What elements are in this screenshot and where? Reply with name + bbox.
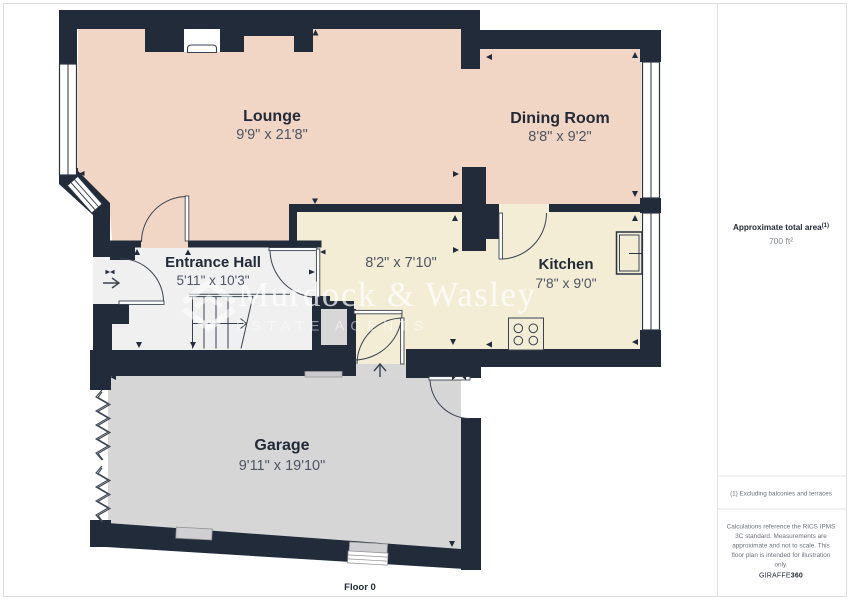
svg-text:floor plan is intended for ill: floor plan is intended for illustration bbox=[732, 552, 831, 559]
svg-text:Entrance Hall: Entrance Hall bbox=[165, 254, 261, 271]
svg-text:Approximate total area(1): Approximate total area(1) bbox=[733, 223, 829, 232]
svg-text:Calculations reference the RIC: Calculations reference the RICS IPMS bbox=[727, 524, 836, 531]
svg-text:GIRAFFE360: GIRAFFE360 bbox=[759, 573, 803, 580]
svg-text:Dining Room: Dining Room bbox=[510, 110, 610, 127]
svg-text:Lounge: Lounge bbox=[243, 108, 301, 125]
svg-text:3C standard. Measurements are: 3C standard. Measurements are bbox=[735, 533, 827, 540]
svg-text:5'11" x 10'3": 5'11" x 10'3" bbox=[176, 273, 249, 288]
svg-text:approximate and not to scale.: approximate and not to scale. This bbox=[732, 543, 830, 550]
svg-text:Murdock & Wasley: Murdock & Wasley bbox=[238, 275, 537, 314]
svg-text:only.: only. bbox=[774, 562, 787, 569]
svg-text:8'2" x 7'10": 8'2" x 7'10" bbox=[365, 255, 436, 271]
svg-text:700 ft²: 700 ft² bbox=[769, 236, 793, 246]
svg-text:Garage: Garage bbox=[254, 437, 309, 454]
svg-text:Floor 0: Floor 0 bbox=[344, 582, 376, 593]
svg-text:ESTATE AGENTS: ESTATE AGENTS bbox=[236, 318, 430, 334]
svg-text:8'8" x 9'2": 8'8" x 9'2" bbox=[528, 129, 591, 145]
svg-text:Kitchen: Kitchen bbox=[538, 256, 593, 273]
svg-text:9'11" x 19'10": 9'11" x 19'10" bbox=[239, 458, 326, 474]
svg-text:(1) Excluding balconies and te: (1) Excluding balconies and terraces bbox=[730, 491, 832, 498]
svg-text:7'8" x 9'0": 7'8" x 9'0" bbox=[535, 275, 596, 291]
svg-text:9'9" x 21'8": 9'9" x 21'8" bbox=[236, 127, 307, 143]
